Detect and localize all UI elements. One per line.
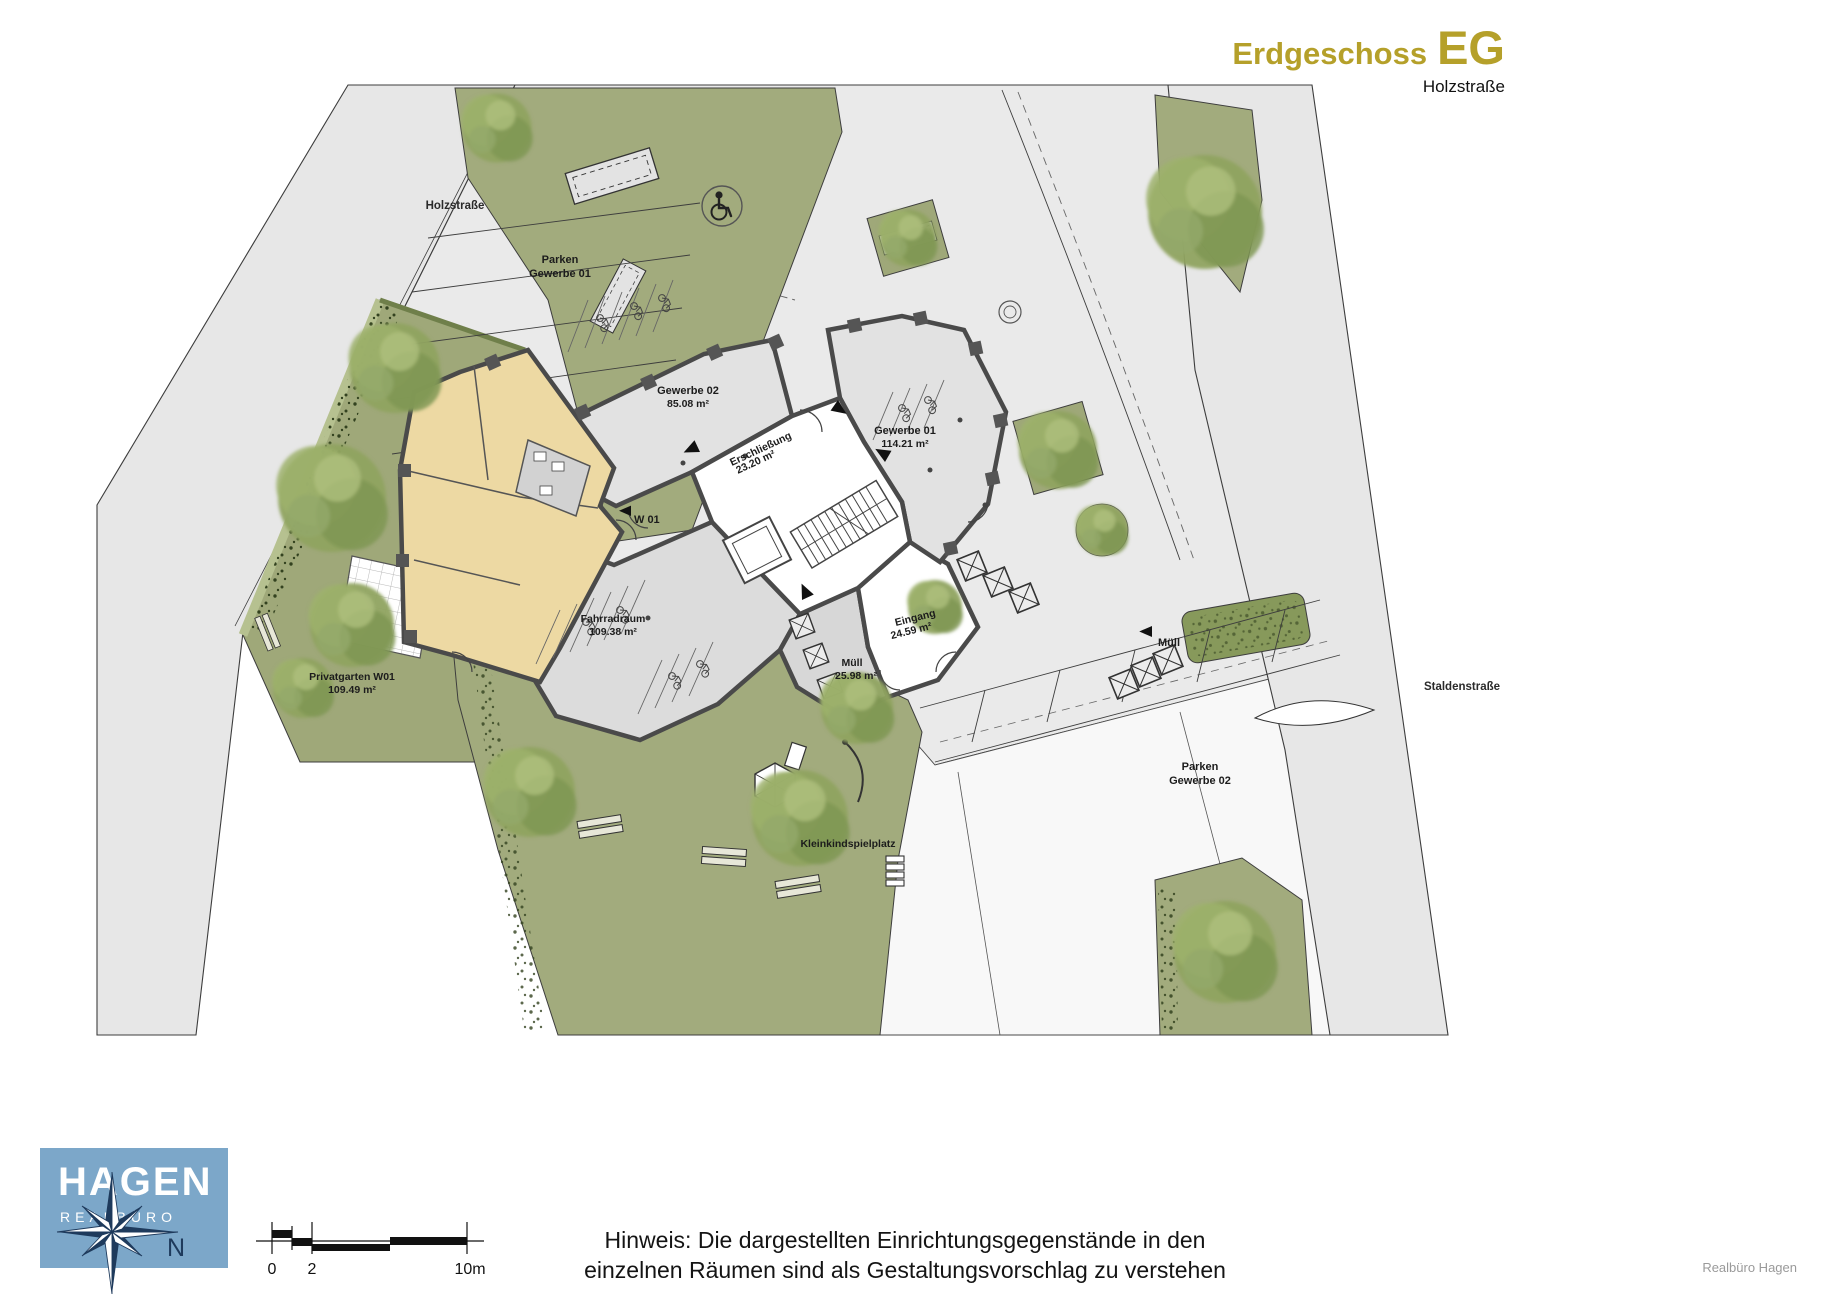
label-parken1-l2: Gewerbe 01 — [529, 268, 591, 280]
disclaimer-note: Hinweis: Die dargestellten Einrichtungsg… — [480, 1226, 1330, 1286]
floor-subtitle: Holzstraße — [1232, 77, 1505, 97]
label-muell-area: 25.98 m² — [835, 670, 878, 682]
sheet-header: ErdgeschossEG Holzstraße — [1232, 20, 1505, 97]
label-parken1-l1: Parken — [542, 254, 579, 266]
note-line2: einzelnen Räumen sind als Gestaltungsvor… — [480, 1256, 1330, 1286]
label-staldenstrasse: Staldenstraße — [1424, 681, 1500, 693]
label-muell-outdoor: Müll — [1158, 637, 1180, 649]
scale-2: 2 — [308, 1261, 317, 1278]
site-plan-drawing: Holzstraße Staldenstraße Parken Gewerbe … — [0, 0, 1823, 1294]
label-fahrradraum-area: 109.38 m² — [589, 626, 637, 638]
floor-abbr: EG — [1437, 21, 1505, 74]
label-privatgarten: Privatgarten W01 — [309, 671, 395, 683]
label-gewerbe01-area: 114.21 m² — [881, 438, 929, 450]
floor-title: Erdgeschoss — [1232, 36, 1427, 71]
label-gewerbe01: Gewerbe 01 — [874, 425, 936, 437]
scale-0: 0 — [268, 1261, 277, 1278]
credit-watermark: Realbüro Hagen — [1702, 1260, 1797, 1275]
label-muell: Müll — [842, 657, 863, 669]
label-parken2-l1: Parken — [1182, 761, 1219, 773]
label-gewerbe02-area: 85.08 m² — [667, 398, 710, 410]
floorplan-sheet: HAGEN REALBÜRO — [0, 0, 1823, 1294]
label-spielplatz: Kleinkindspielplatz — [800, 838, 895, 850]
label-holzstrasse: Holzstraße — [426, 200, 485, 212]
label-gewerbe02: Gewerbe 02 — [657, 385, 719, 397]
note-line1: Hinweis: Die dargestellten Einrichtungsg… — [480, 1226, 1330, 1256]
compass-rose — [57, 1172, 178, 1294]
label-privatgarten-area: 109.49 m² — [328, 684, 376, 696]
label-fahrradraum: Fahrradraum — [581, 613, 646, 625]
label-parken2-l2: Gewerbe 02 — [1169, 775, 1231, 787]
label-w01: W 01 — [634, 514, 660, 526]
compass-north-label: N — [167, 1234, 185, 1262]
scale-bar: 0 2 10m — [256, 1222, 486, 1278]
